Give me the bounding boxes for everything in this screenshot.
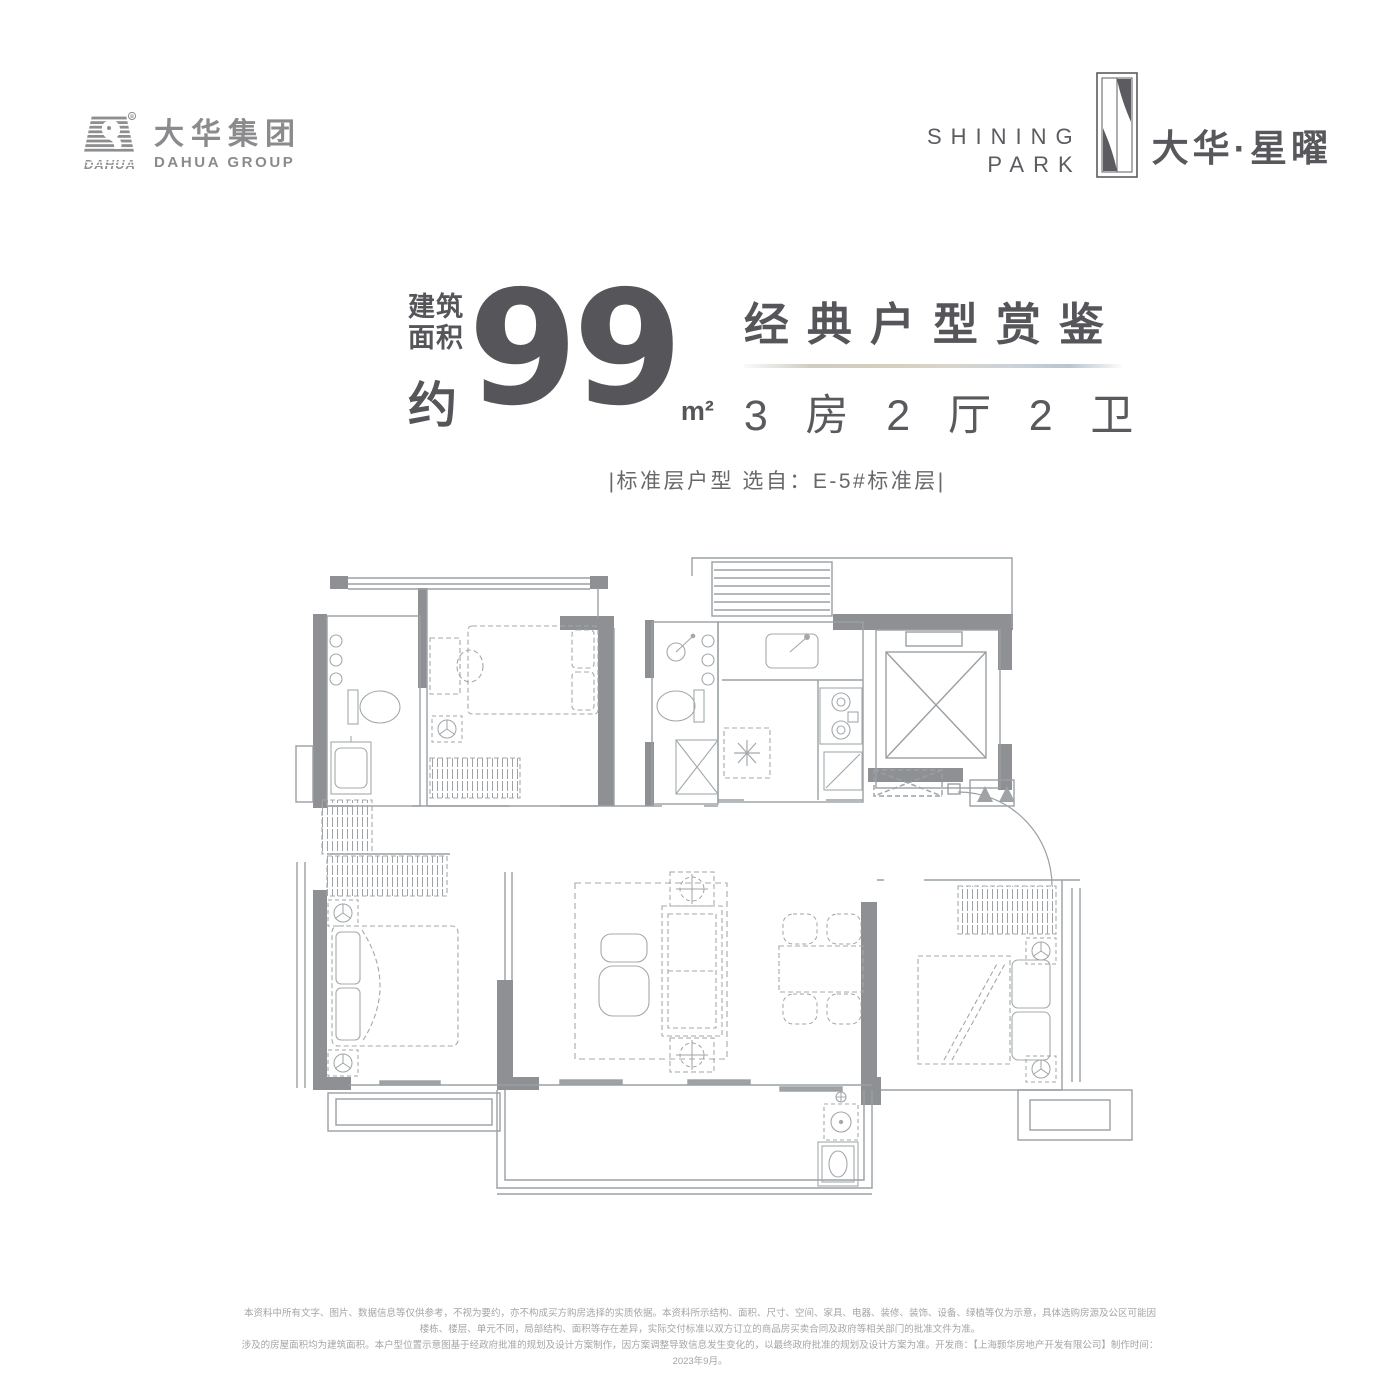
wardrobe-icon [958, 886, 1056, 934]
bed-icon [332, 926, 458, 1046]
wardrobe-icon [327, 856, 447, 896]
dining-table-icon [779, 946, 863, 992]
kitchen-sink-icon [766, 634, 818, 668]
desk-icon [430, 638, 460, 694]
toilet-tank-icon [348, 690, 358, 724]
bedroom2-furniture [430, 626, 598, 798]
pillow-icon [572, 630, 594, 668]
wardrobe-icon [430, 758, 520, 798]
disclaimer-line2: 涉及的房屋面积均为建筑面积。本户型位置示意图基于经政府批准的规划及设计方案制作，… [240, 1338, 1160, 1370]
dining-chair-icon [783, 914, 817, 944]
bathroom2-fixtures [657, 634, 718, 794]
master-bedroom-furniture [322, 800, 458, 1046]
dining-chair-icon [827, 994, 861, 1024]
balcony-laundry [818, 1092, 858, 1186]
pillow-icon [572, 672, 594, 710]
poster-page: R DAHUA 大华集团 DAHUA GROUP SHINING PARK 大华… [0, 0, 1400, 1400]
floor-plan [0, 0, 1400, 1400]
plan-furniture [322, 626, 1056, 1186]
ac-unit-icon [328, 900, 358, 926]
bedroom3-furniture [918, 886, 1056, 1064]
stove-icon [820, 688, 862, 744]
plan-walls [313, 576, 1013, 1105]
snowflake-icon [734, 740, 760, 766]
toilet-bowl-icon [657, 691, 695, 721]
pillow-icon [336, 932, 360, 984]
bathroom1-fixtures [330, 635, 400, 794]
ceiling-lamp-icon [670, 872, 714, 906]
coffee-table-icon [601, 934, 647, 962]
bed-icon [468, 626, 598, 714]
kitchen-fixtures [724, 634, 862, 790]
dining-chair-icon [827, 914, 861, 944]
chair-icon [457, 650, 483, 682]
coffee-table-icon [599, 966, 649, 1016]
living-room-furniture [575, 883, 727, 1059]
toilet-bowl-icon [360, 691, 400, 723]
dining-furniture [779, 946, 863, 992]
disclaimer: 本资料中所有文字、图片、数据信息等仅供参考，不视为要约，亦不构成买方购房选择的实… [240, 1306, 1160, 1370]
dining-chair-icon [783, 994, 817, 1024]
pillow-icon [336, 988, 360, 1040]
wardrobe-icon [322, 800, 372, 854]
pillow-icon [1012, 960, 1050, 1008]
bed-icon [918, 956, 1010, 1064]
ceiling-lamp-icon [670, 1038, 714, 1072]
ac-unit-icon [432, 716, 462, 742]
disclaimer-line1: 本资料中所有文字、图片、数据信息等仅供参考，不视为要约，亦不构成买方购房选择的实… [240, 1306, 1160, 1338]
ac-unit-icon [328, 1050, 358, 1076]
pillow-icon [1012, 1012, 1050, 1060]
